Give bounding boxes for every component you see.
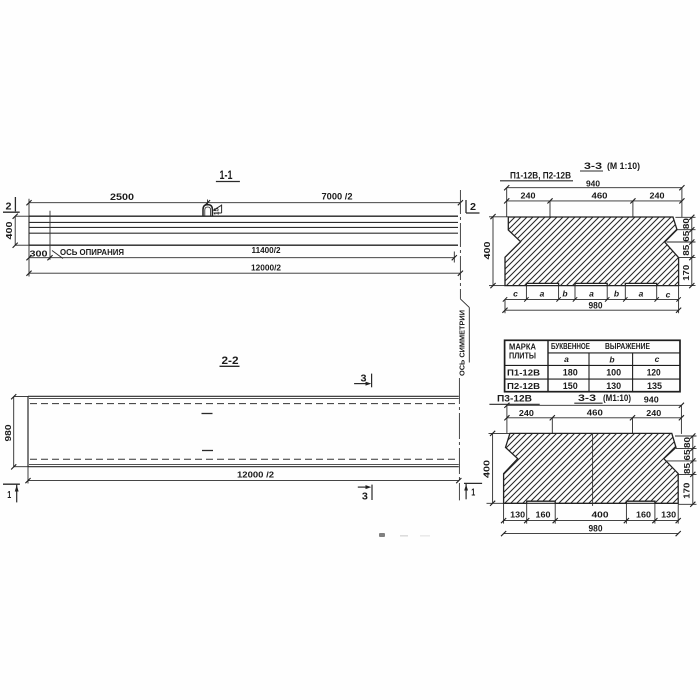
svg-text:(М 1:10): (М 1:10) bbox=[607, 161, 640, 172]
svg-text:ОСЬ ОПИРАНИЯ: ОСЬ ОПИРАНИЯ bbox=[60, 248, 124, 257]
svg-text:2-2: 2-2 bbox=[222, 355, 239, 367]
svg-text:65: 65 bbox=[683, 449, 692, 461]
svg-text:85: 85 bbox=[682, 244, 691, 256]
svg-text:c: c bbox=[513, 289, 518, 299]
svg-text:12000/2: 12000/2 bbox=[251, 263, 281, 273]
svg-text:a: a bbox=[540, 289, 545, 299]
svg-text:130: 130 bbox=[606, 381, 621, 391]
svg-text:170: 170 bbox=[682, 264, 691, 281]
svg-text:БУКВЕННОЕ: БУКВЕННОЕ bbox=[551, 342, 590, 351]
svg-text:240: 240 bbox=[521, 190, 536, 200]
svg-text:11400/2: 11400/2 bbox=[252, 245, 281, 255]
svg-text:170: 170 bbox=[683, 482, 692, 499]
svg-text:a: a bbox=[589, 289, 594, 299]
svg-text:980: 980 bbox=[3, 424, 13, 441]
svg-text:160: 160 bbox=[536, 510, 551, 520]
svg-text:1: 1 bbox=[7, 490, 11, 501]
svg-text:3-3: 3-3 bbox=[584, 161, 602, 172]
svg-text:П2-12В: П2-12В bbox=[507, 381, 540, 391]
svg-text:980: 980 bbox=[589, 523, 603, 533]
svg-text:400: 400 bbox=[482, 241, 492, 259]
svg-text:2: 2 bbox=[470, 202, 476, 213]
svg-text:3-3: 3-3 bbox=[578, 393, 596, 404]
svg-text:П1-12В, П2-12В: П1-12В, П2-12В bbox=[510, 171, 571, 181]
svg-text:80: 80 bbox=[682, 217, 691, 229]
svg-text:ОСЬ СИММЕТРИИ: ОСЬ СИММЕТРИИ bbox=[458, 310, 467, 376]
svg-text:П1-12В: П1-12В bbox=[507, 368, 540, 378]
svg-text:65: 65 bbox=[682, 230, 691, 242]
svg-text:c: c bbox=[666, 290, 671, 300]
svg-text:150: 150 bbox=[563, 381, 578, 391]
svg-text:85: 85 bbox=[683, 462, 692, 474]
svg-text:a: a bbox=[564, 354, 569, 364]
svg-text:2500: 2500 bbox=[110, 192, 134, 202]
svg-text:240: 240 bbox=[519, 408, 534, 418]
svg-text:ВЫРАЖЕНИЕ: ВЫРАЖЕНИЕ bbox=[605, 342, 650, 351]
svg-text:7000 /2: 7000 /2 bbox=[322, 192, 353, 202]
svg-text:(М1:10): (М1:10) bbox=[603, 393, 631, 404]
svg-text:940: 940 bbox=[644, 395, 659, 405]
svg-text:b: b bbox=[562, 289, 567, 299]
svg-text:160: 160 bbox=[636, 510, 651, 520]
svg-text:135: 135 bbox=[647, 381, 662, 391]
svg-text:3: 3 bbox=[362, 492, 368, 503]
svg-text:400: 400 bbox=[592, 510, 609, 520]
svg-text:400: 400 bbox=[482, 460, 492, 478]
svg-text:ПЛИТЫ: ПЛИТЫ bbox=[509, 351, 536, 360]
svg-text:940: 940 bbox=[586, 179, 600, 189]
svg-text:П3-12В: П3-12В bbox=[497, 394, 533, 404]
svg-text:300: 300 bbox=[30, 248, 48, 258]
svg-text:80: 80 bbox=[683, 436, 692, 448]
svg-text:1: 1 bbox=[471, 488, 475, 499]
svg-text:460: 460 bbox=[587, 408, 603, 418]
svg-text:130: 130 bbox=[661, 510, 676, 520]
svg-text:460: 460 bbox=[592, 190, 608, 200]
svg-text:12000 /2: 12000 /2 bbox=[237, 470, 274, 480]
svg-text:240: 240 bbox=[650, 191, 665, 201]
svg-text:980: 980 bbox=[589, 300, 603, 310]
svg-text:c: c bbox=[655, 354, 660, 364]
svg-text:130: 130 bbox=[510, 510, 525, 520]
svg-text:a: a bbox=[639, 289, 644, 299]
svg-text:120: 120 bbox=[647, 368, 661, 378]
svg-text:15: 15 bbox=[214, 208, 221, 216]
svg-text:1-1: 1-1 bbox=[220, 168, 233, 182]
svg-text:180: 180 bbox=[563, 368, 578, 378]
svg-text:b: b bbox=[609, 355, 614, 365]
svg-text:240: 240 bbox=[646, 408, 661, 418]
svg-text:b: b bbox=[614, 289, 619, 299]
svg-text:2: 2 bbox=[6, 202, 12, 213]
svg-text:МАРКА: МАРКА bbox=[509, 342, 536, 351]
svg-text:100: 100 bbox=[606, 368, 621, 378]
svg-text:400: 400 bbox=[4, 221, 14, 239]
